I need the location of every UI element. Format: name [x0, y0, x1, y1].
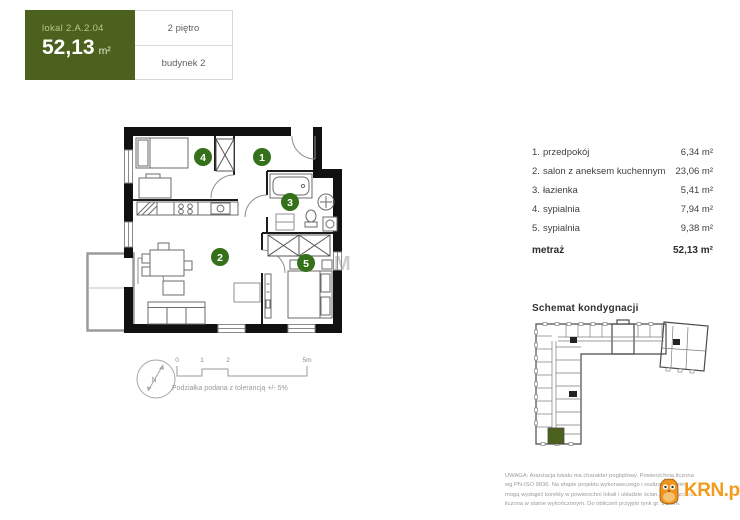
- bathroom-fixtures: [270, 174, 337, 231]
- floorplan-page: lokal 2.A.2.04 52,13 m² 2 piętro budynek…: [0, 0, 740, 520]
- building-outline: [536, 320, 708, 444]
- total-area-value: 52,13 m²: [673, 245, 713, 256]
- total-area-row: metraż 52,13 m²: [532, 245, 713, 264]
- svg-text:5: 5: [303, 258, 309, 270]
- scale-and-compass: N 0 1 2 5m Podziałka podana z tolerancją…: [130, 352, 360, 407]
- room-row-1: 1.przedpokój 6,34 m²: [532, 147, 713, 166]
- room-list: 1.przedpokój 6,34 m² 2.salon z aneksem k…: [532, 147, 713, 264]
- schematic-title: Schemat kondygnacji: [532, 303, 639, 314]
- watermark-letter: M: [334, 253, 351, 275]
- bedroom4-furniture: [136, 138, 188, 198]
- room-area: 9,38 m²: [681, 223, 713, 234]
- floor-plan: M 1 2 3 4 5: [84, 114, 354, 364]
- svg-text:4: 4: [200, 152, 206, 164]
- krn-logo[interactable]: KRN.pl: [656, 477, 740, 505]
- livingroom-furniture: [142, 243, 260, 324]
- scale-tick-0: 0: [175, 357, 179, 364]
- svg-text:3: 3: [287, 197, 293, 209]
- highlighted-unit: [548, 428, 564, 444]
- room-area: 5,41 m²: [681, 185, 713, 196]
- unit-meta-box: 2 piętro budynek 2: [135, 10, 233, 80]
- krn-logo-text: KRN.pl: [684, 480, 740, 502]
- building-label: budynek 2: [135, 45, 232, 80]
- room-row-3: 3.łazienka 5,41 m²: [532, 185, 713, 204]
- unit-number-label: lokal 2.A.2.04: [42, 23, 135, 34]
- room-row-2: 2.salon z aneksem kuchennym 23,06 m²: [532, 166, 713, 185]
- owl-icon: [656, 477, 682, 505]
- room-marker-4: 4: [194, 148, 212, 166]
- floor-label: 2 piętro: [135, 11, 232, 45]
- room-row-5: 5.sypialnia 9,38 m²: [532, 223, 713, 242]
- unit-area-unit: m²: [99, 45, 111, 58]
- scale-tolerance-note: Podziałka podana z tolerancją +/- 5%: [172, 385, 288, 392]
- bedroom5-furniture: [265, 260, 332, 318]
- room-row-4: 4.sypialnia 7,94 m²: [532, 204, 713, 223]
- compass-label: N: [151, 377, 156, 384]
- floor-schematic: [533, 318, 711, 450]
- scale-bar: [177, 366, 307, 376]
- unit-area-value: 52,13: [42, 37, 95, 58]
- room-area: 6,34 m²: [681, 147, 713, 158]
- room-marker-2: 2: [211, 248, 229, 266]
- kitchen-counter: [137, 202, 238, 215]
- scale-tick-5m: 5m: [302, 357, 311, 364]
- svg-text:2: 2: [217, 252, 223, 264]
- unit-card: lokal 2.A.2.04 52,13 m²: [25, 10, 135, 80]
- room-area: 23,06 m²: [676, 166, 714, 177]
- room-marker-5: 5: [297, 254, 315, 272]
- room-marker-3: 3: [281, 193, 299, 211]
- scale-tick-1: 1: [200, 357, 204, 364]
- room-marker-1: 1: [253, 148, 271, 166]
- room-area: 7,94 m²: [681, 204, 713, 215]
- svg-text:1: 1: [259, 152, 265, 164]
- scale-tick-2: 2: [226, 357, 230, 364]
- total-label: metraż: [532, 245, 564, 256]
